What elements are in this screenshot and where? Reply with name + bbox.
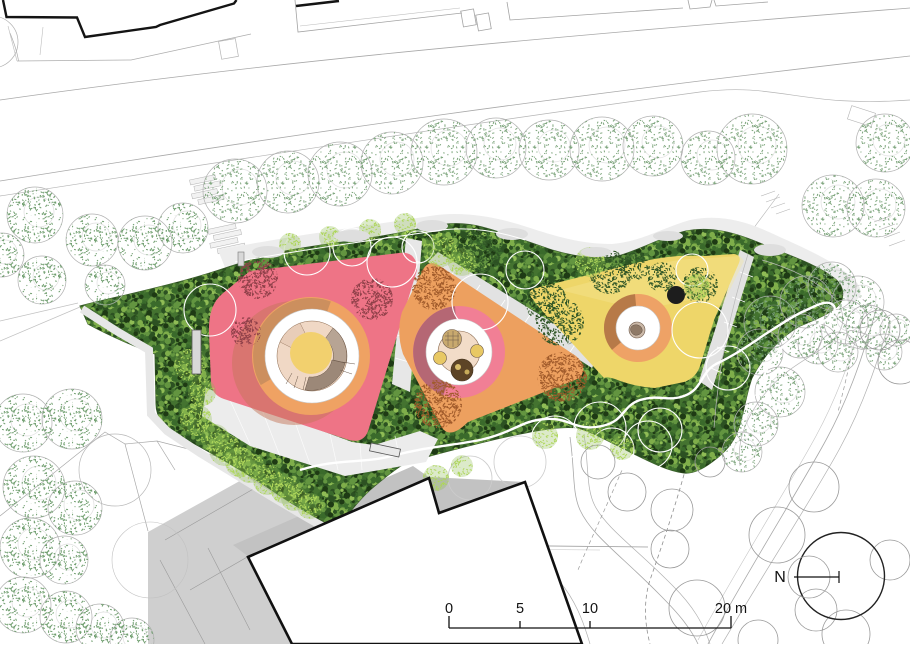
svg-text:N: N: [774, 569, 786, 586]
svg-text:20 m: 20 m: [715, 601, 747, 617]
svg-text:0: 0: [445, 601, 453, 617]
svg-text:10: 10: [582, 601, 598, 617]
svg-text:5: 5: [516, 601, 524, 617]
